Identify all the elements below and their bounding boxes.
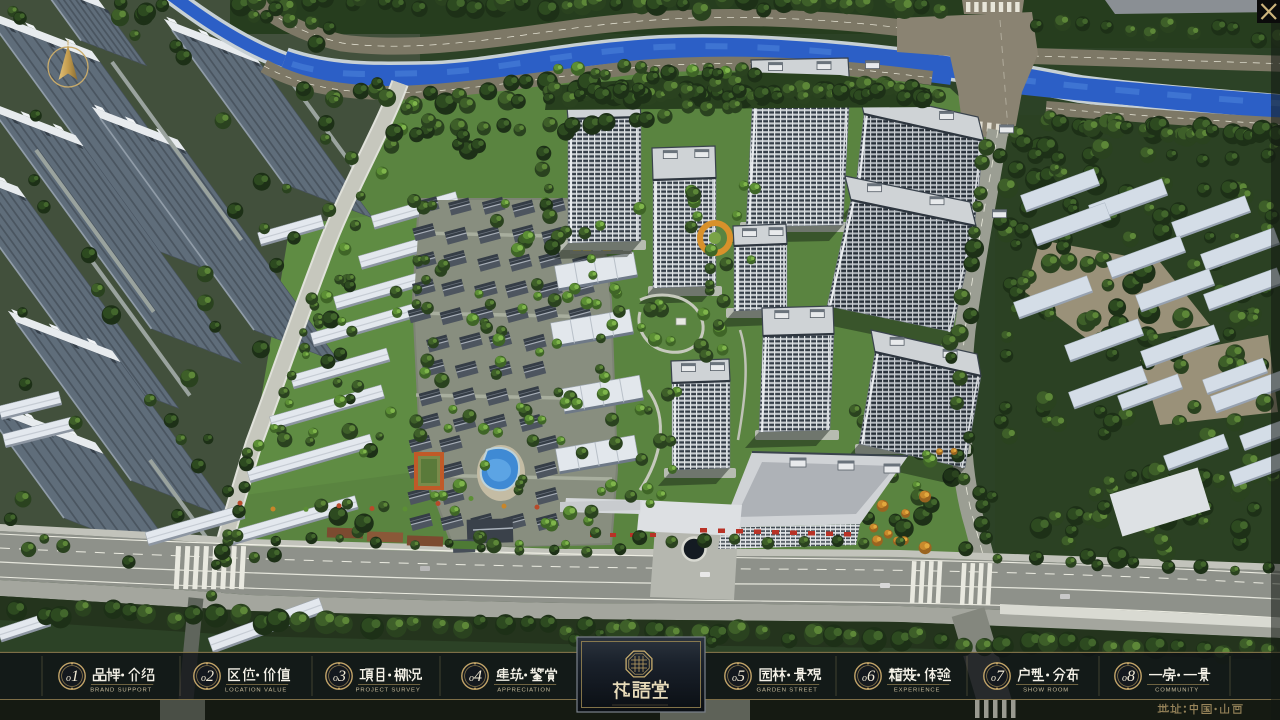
svg-text:SHOW ROOM: SHOW ROOM — [1023, 688, 1069, 694]
svg-text:GARDEN STREET: GARDEN STREET — [757, 688, 818, 694]
svg-text:APPRECIATION: APPRECIATION — [497, 688, 551, 694]
svg-text:BRAND SUPPORT: BRAND SUPPORT — [90, 688, 152, 694]
svg-text:COMMUNITY: COMMUNITY — [1155, 688, 1199, 694]
svg-text:EXPERIENCE: EXPERIENCE — [894, 688, 940, 694]
svg-text:PROJECT SURVEY: PROJECT SURVEY — [356, 688, 421, 694]
svg-text:LOCATION VALUE: LOCATION VALUE — [225, 688, 287, 694]
